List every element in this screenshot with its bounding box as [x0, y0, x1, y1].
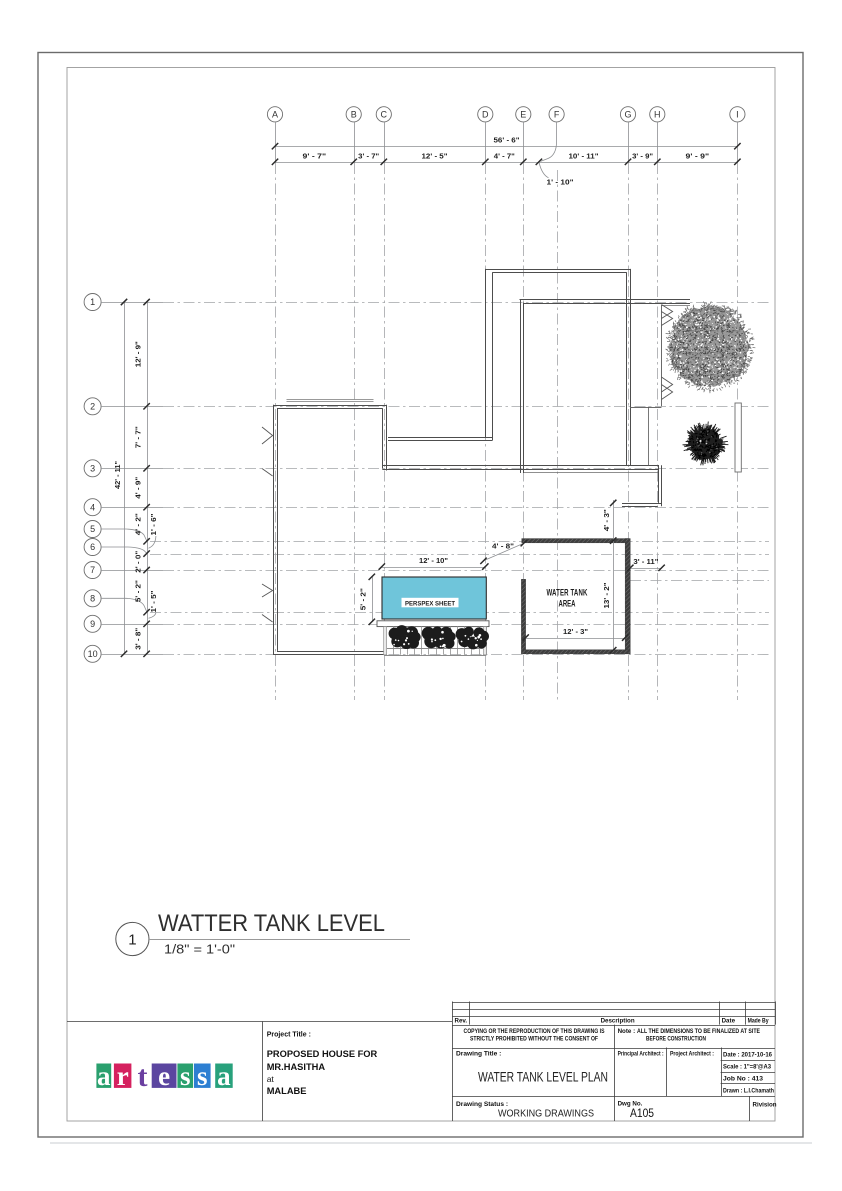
svg-text:Scale : 1"=8'@A3: Scale : 1"=8'@A3 [723, 1064, 771, 1071]
svg-text:AREA: AREA [559, 599, 576, 609]
svg-text:4: 4 [90, 502, 95, 512]
svg-text:ALL THE DIMENSIONS TO BE FINAL: ALL THE DIMENSIONS TO BE FINALIZED AT SI… [637, 1028, 760, 1035]
svg-text:Project Architect :: Project Architect : [670, 1051, 714, 1058]
svg-text:12' - 3": 12' - 3" [563, 627, 588, 636]
svg-text:F: F [554, 110, 560, 120]
svg-text:MALABE: MALABE [267, 1086, 307, 1096]
svg-text:COPYING OR THE REPRODUCTION OF: COPYING OR THE REPRODUCTION OF THIS DRAW… [464, 1028, 605, 1035]
svg-text:3' - 7": 3' - 7" [358, 151, 379, 160]
svg-text:9: 9 [90, 619, 95, 629]
svg-text:at: at [267, 1074, 275, 1084]
svg-text:9' - 9": 9' - 9" [686, 151, 710, 160]
svg-text:WATER TANK: WATER TANK [547, 588, 588, 598]
svg-text:5: 5 [90, 524, 95, 534]
svg-text:e: e [158, 1061, 170, 1091]
svg-text:1' - 5": 1' - 5" [149, 591, 158, 613]
svg-text:H: H [654, 110, 661, 120]
svg-text:2' - 0": 2' - 0" [134, 551, 143, 573]
svg-text:a: a [217, 1061, 231, 1091]
svg-text:s: s [197, 1061, 208, 1091]
svg-text:Rivision: Rivision [753, 1102, 777, 1109]
svg-text:4' - 9": 4' - 9" [134, 477, 143, 499]
svg-text:Drawn : L.I.Chamath: Drawn : L.I.Chamath [723, 1088, 774, 1095]
svg-text:Job No : 413: Job No : 413 [723, 1076, 764, 1083]
svg-text:3' - 8": 3' - 8" [134, 628, 143, 650]
svg-text:10' - 11": 10' - 11" [569, 151, 599, 160]
svg-text:BEFORE CONSTRUCTION: BEFORE CONSTRUCTION [646, 1036, 706, 1043]
svg-text:10: 10 [88, 649, 98, 659]
svg-text:C: C [381, 110, 388, 120]
svg-text:Principal Architect :: Principal Architect : [618, 1051, 664, 1058]
svg-text:Rev.: Rev. [455, 1018, 468, 1025]
svg-text:1: 1 [90, 297, 95, 307]
svg-text:A: A [272, 110, 278, 120]
svg-text:Date : 2017-10-16: Date : 2017-10-16 [723, 1052, 772, 1059]
svg-text:3: 3 [90, 464, 95, 474]
svg-text:r: r [117, 1061, 129, 1091]
svg-text:1: 1 [128, 932, 136, 949]
svg-text:PROPOSED HOUSE FOR: PROPOSED HOUSE FOR [267, 1049, 378, 1059]
svg-text:4' - 2": 4' - 2" [134, 513, 143, 535]
svg-text:12' - 10": 12' - 10" [419, 556, 448, 565]
svg-text:4' - 8": 4' - 8" [492, 542, 514, 551]
svg-text:Note :: Note : [618, 1028, 636, 1035]
svg-text:Date: Date [722, 1018, 736, 1025]
svg-text:1/8" = 1'-0": 1/8" = 1'-0" [164, 943, 235, 957]
svg-text:s: s [180, 1061, 191, 1091]
svg-text:PERSPEX SHEET: PERSPEX SHEET [405, 600, 455, 607]
svg-text:4' - 3": 4' - 3" [602, 509, 611, 531]
svg-text:E: E [520, 110, 526, 120]
svg-text:56' - 6": 56' - 6" [494, 136, 520, 145]
svg-text:3' - 9": 3' - 9" [632, 151, 653, 160]
svg-text:D: D [482, 110, 489, 120]
svg-text:6: 6 [90, 542, 95, 552]
svg-text:7' - 7": 7' - 7" [134, 426, 143, 448]
svg-text:7: 7 [90, 565, 95, 575]
svg-text:Drawing Title :: Drawing Title : [456, 1051, 501, 1058]
svg-text:WATTER TANK LEVEL: WATTER TANK LEVEL [158, 910, 385, 937]
svg-text:a: a [97, 1061, 111, 1091]
svg-text:8: 8 [90, 594, 95, 604]
svg-text:A105: A105 [630, 1106, 654, 1120]
svg-text:G: G [624, 110, 631, 120]
svg-text:t: t [138, 1060, 148, 1093]
svg-text:1' - 10": 1' - 10" [547, 178, 574, 187]
svg-text:2: 2 [90, 402, 95, 412]
svg-text:9' - 7": 9' - 7" [303, 151, 327, 160]
svg-text:Description: Description [601, 1018, 635, 1025]
svg-text:B: B [351, 110, 357, 120]
svg-text:MR.HASITHA: MR.HASITHA [267, 1062, 326, 1072]
svg-text:5' - 2": 5' - 2" [359, 588, 368, 610]
svg-text:13' - 2": 13' - 2" [602, 583, 611, 609]
svg-text:4' - 7": 4' - 7" [494, 151, 515, 160]
svg-text:I: I [736, 110, 739, 120]
svg-text:1' - 6": 1' - 6" [149, 514, 158, 536]
svg-text:5' - 2": 5' - 2" [134, 580, 143, 602]
svg-text:3' - 11": 3' - 11" [633, 557, 658, 566]
svg-text:Project Title :: Project Title : [267, 1032, 311, 1039]
svg-text:12' - 9": 12' - 9" [134, 341, 143, 367]
svg-text:42' - 11": 42' - 11" [113, 461, 122, 489]
svg-text:Made By: Made By [748, 1018, 769, 1025]
svg-text:WORKING DRAWINGS: WORKING DRAWINGS [498, 1108, 594, 1120]
svg-text:STRICTLY PROHIBITED WITHOUT TH: STRICTLY PROHIBITED WITHOUT THE CONSENT … [470, 1036, 598, 1043]
svg-text:WATER TANK LEVEL PLAN: WATER TANK LEVEL PLAN [478, 1070, 608, 1085]
svg-text:12' - 5": 12' - 5" [422, 151, 448, 160]
